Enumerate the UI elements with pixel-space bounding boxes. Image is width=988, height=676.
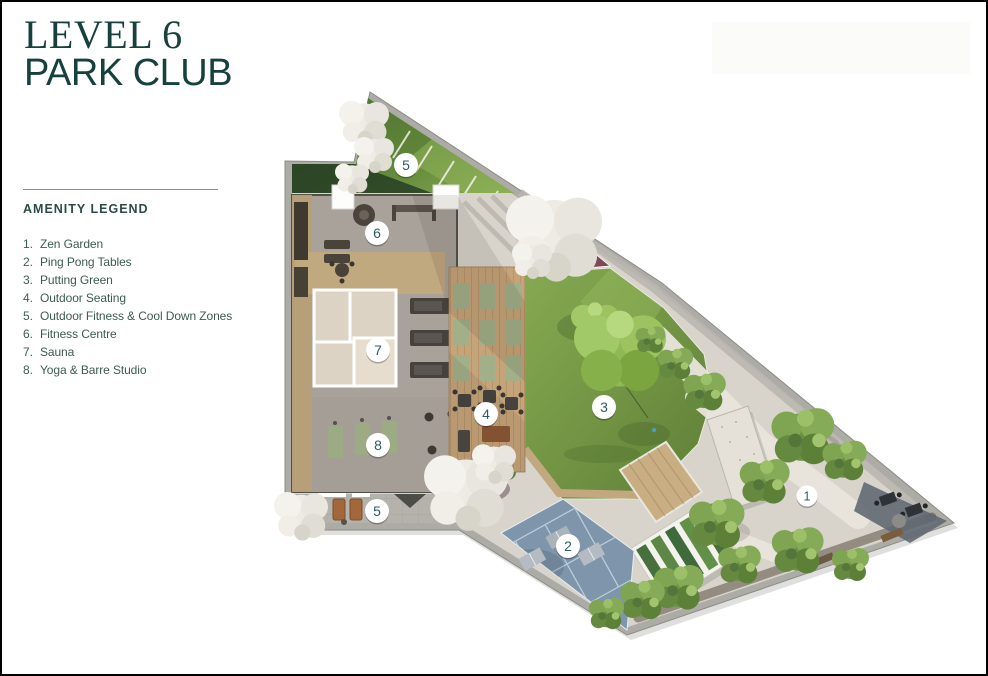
plan-marker-7: 7 bbox=[366, 338, 390, 364]
svg-text:7: 7 bbox=[374, 342, 382, 358]
plan-marker-3: 3 bbox=[592, 395, 616, 421]
plan-marker-8: 8 bbox=[366, 433, 390, 459]
svg-text:3: 3 bbox=[600, 399, 608, 415]
plan-marker-2: 2 bbox=[556, 534, 580, 560]
svg-text:5: 5 bbox=[402, 157, 410, 173]
site-plan-rendering: 123455678 bbox=[2, 2, 988, 676]
sauna-rooms bbox=[314, 290, 396, 386]
plan-marker-5: 5 bbox=[365, 499, 389, 525]
site-plan: 123455678 bbox=[2, 2, 988, 676]
svg-text:2: 2 bbox=[564, 538, 572, 554]
svg-text:8: 8 bbox=[374, 437, 382, 453]
svg-text:6: 6 bbox=[373, 225, 381, 241]
plan-marker-6: 6 bbox=[365, 221, 389, 247]
svg-text:4: 4 bbox=[482, 406, 490, 422]
svg-text:1: 1 bbox=[804, 490, 811, 504]
plan-marker-1: 1 bbox=[797, 486, 818, 509]
plan-marker-4: 4 bbox=[474, 402, 498, 428]
page: LEVEL 6 PARK CLUB AMENITY LEGEND 1.Zen G… bbox=[0, 0, 988, 676]
plan-marker-5: 5 bbox=[394, 153, 418, 179]
treadmill-row bbox=[410, 298, 452, 378]
svg-text:5: 5 bbox=[373, 503, 381, 519]
